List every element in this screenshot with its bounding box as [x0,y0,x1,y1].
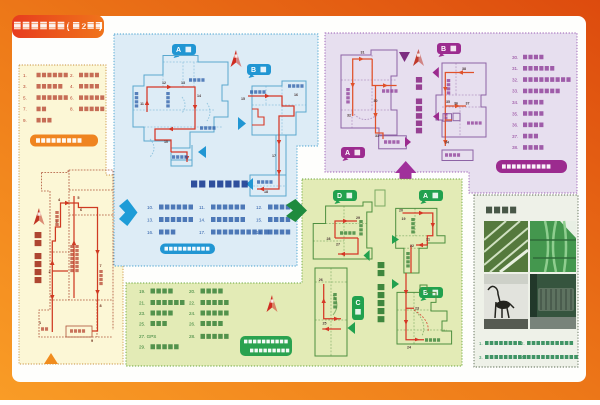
svg-text:8: 8 [99,304,101,308]
svg-text:36: 36 [454,102,458,106]
svg-text:6.: 6. [70,95,74,100]
svg-text:31.: 31. [512,66,518,71]
svg-text:17.: 17. [199,230,205,235]
svg-text:31: 31 [361,51,365,55]
svg-text:2.: 2. [70,73,74,78]
svg-text:26.: 26. [189,321,195,326]
svg-text:10: 10 [164,140,168,144]
svg-text:32.: 32. [512,77,518,82]
svg-text:9: 9 [91,339,93,343]
svg-text:2: 2 [82,21,87,31]
svg-text:A: A [176,47,181,54]
svg-text:14.: 14. [199,217,205,222]
svg-text:33: 33 [375,134,379,138]
svg-text:2: 2 [48,270,50,274]
svg-text:34.: 34. [512,100,518,105]
svg-text:D: D [337,193,342,200]
svg-text:12.: 12. [256,205,262,210]
svg-text:30.: 30. [512,55,518,60]
svg-text:14: 14 [197,94,201,98]
svg-text:9.: 9. [23,118,27,123]
svg-text:36.: 36. [512,123,518,128]
svg-text:15: 15 [241,97,245,101]
svg-text:6: 6 [80,208,82,212]
svg-text:34: 34 [445,141,449,145]
svg-text:1.: 1. [479,341,483,346]
svg-text:16.: 16. [147,230,153,235]
svg-text:13.: 13. [147,217,153,222]
svg-text:30: 30 [374,99,378,103]
svg-text:4.: 4. [70,84,74,89]
svg-text:16: 16 [294,93,298,97]
svg-text:18: 18 [264,190,268,194]
svg-text:25.: 25. [139,321,145,326]
svg-text:37.: 37. [512,134,518,139]
svg-text:1.: 1. [23,73,27,78]
svg-text:10.: 10. [147,205,153,210]
svg-text:22: 22 [410,244,414,248]
svg-text:11: 11 [140,102,144,106]
svg-text:7: 7 [99,264,101,268]
svg-text:19.: 19. [139,289,145,294]
svg-text:23: 23 [415,307,419,311]
svg-text:21.: 21. [139,300,145,305]
svg-text:12: 12 [162,81,166,85]
svg-text:32: 32 [347,114,351,118]
svg-text:38.: 38. [512,145,518,150]
svg-text:17: 17 [272,154,276,158]
svg-text:B: B [441,46,446,53]
svg-text:22.: 22. [189,300,195,305]
svg-text:4.: 4. [521,355,525,360]
svg-text:3.: 3. [23,84,27,89]
svg-text:21: 21 [426,238,430,242]
svg-text:15.: 15. [256,217,262,222]
svg-text:24: 24 [407,346,411,350]
svg-text:(: ( [67,21,70,31]
svg-text:29: 29 [356,216,360,220]
svg-text:19: 19 [402,217,406,221]
svg-text:38: 38 [462,67,466,71]
svg-text:2.: 2. [521,341,525,346]
svg-text:37: 37 [466,102,470,106]
svg-text:35: 35 [446,100,450,104]
svg-text:5: 5 [77,196,79,200]
svg-text:28.: 28. [189,334,195,339]
svg-text:8.: 8. [70,107,74,112]
svg-text:20: 20 [399,209,403,213]
svg-text:27. GPS: 27. GPS [139,334,156,339]
svg-text:11.: 11. [199,205,205,210]
svg-text:): ) [99,21,102,31]
svg-text:26: 26 [319,278,323,282]
svg-text:1: 1 [39,321,41,325]
svg-text:35.: 35. [512,111,518,116]
svg-text:5.: 5. [23,95,27,100]
svg-text:A: A [423,193,428,200]
svg-text:28: 28 [327,237,331,241]
svg-text:7.: 7. [23,107,27,112]
svg-text:18.: 18. [256,230,262,235]
svg-text:23.: 23. [139,311,145,316]
svg-text:3.: 3. [479,355,483,360]
svg-text:A: A [345,150,350,157]
svg-text:33.: 33. [512,89,518,94]
svg-text:29.: 29. [139,345,145,350]
svg-text:C: C [355,300,360,307]
svg-text:13: 13 [181,81,185,85]
svg-text:20.: 20. [189,289,195,294]
svg-text:B: B [251,67,256,74]
svg-text:25: 25 [323,322,327,326]
svg-text:27: 27 [336,243,340,247]
svg-text:24.: 24. [189,311,195,316]
